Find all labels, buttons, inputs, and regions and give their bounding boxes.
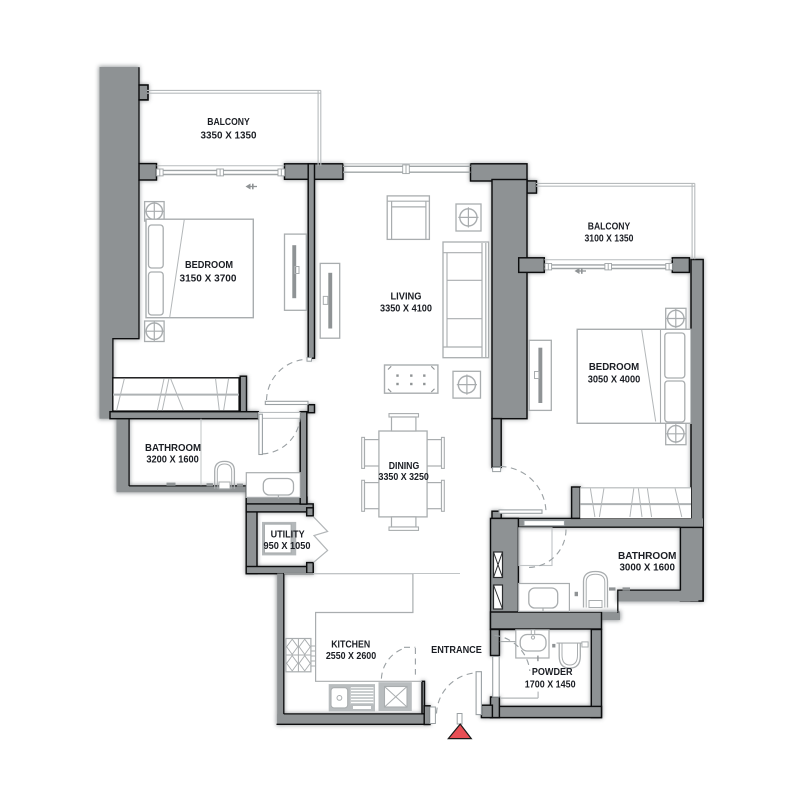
svg-text:BALCONY: BALCONY [588,222,631,233]
svg-text:UTILITY: UTILITY [271,529,305,540]
svg-text:3350 X 4100: 3350 X 4100 [380,304,432,315]
svg-text:ENTRANCE: ENTRANCE [431,645,482,656]
svg-text:KITCHEN: KITCHEN [331,640,370,651]
svg-text:3350 X 3250: 3350 X 3250 [379,472,430,483]
svg-text:BATHROOM: BATHROOM [618,551,677,562]
svg-text:BEDROOM: BEDROOM [185,260,233,271]
svg-text:BATHROOM: BATHROOM [145,443,201,454]
svg-text:3050 X 4000: 3050 X 4000 [588,374,641,385]
svg-text:1700 X 1450: 1700 X 1450 [525,680,576,691]
svg-text:BEDROOM: BEDROOM [589,362,639,373]
svg-text:BALCONY: BALCONY [207,117,250,128]
svg-text:DINING: DINING [389,461,420,472]
svg-text:950 X 1050: 950 X 1050 [264,541,311,552]
svg-text:3000 X 1600: 3000 X 1600 [619,562,675,573]
svg-text:3150 X 3700: 3150 X 3700 [180,274,237,285]
svg-text:LIVING: LIVING [391,292,422,303]
svg-text:POWDER: POWDER [532,667,573,678]
svg-text:2550 X 2600: 2550 X 2600 [326,651,377,662]
svg-text:3100 X 1350: 3100 X 1350 [585,233,634,244]
svg-text:3200 X 1600: 3200 X 1600 [146,455,199,466]
svg-text:3350 X 1350: 3350 X 1350 [201,131,257,142]
